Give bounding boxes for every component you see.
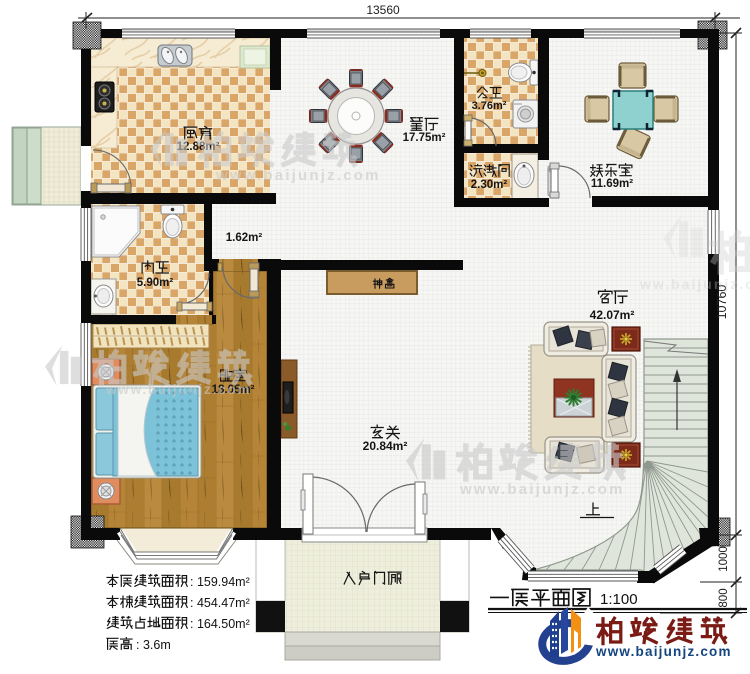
svg-text:www.baijunjz.com: www.baijunjz.com <box>595 644 732 659</box>
svg-text:1000: 1000 <box>718 546 730 572</box>
svg-text:www.baijunjz.com: www.baijunjz.com <box>459 481 625 498</box>
svg-text:: 454.47m²: : 454.47m² <box>190 596 250 610</box>
svg-text:: 159.94m²: : 159.94m² <box>190 575 250 589</box>
svg-text:20.84m²: 20.84m² <box>363 439 408 453</box>
svg-text:1.62m²: 1.62m² <box>226 232 263 244</box>
svg-text:800: 800 <box>718 588 730 607</box>
svg-text:17.75m²: 17.75m² <box>403 132 446 144</box>
svg-text:ww.baijunjz.com: ww.baijunjz.com <box>639 276 750 292</box>
svg-text:1:100: 1:100 <box>600 591 638 608</box>
svg-text:2.30m²: 2.30m² <box>471 179 508 191</box>
svg-text:: 3.6m: : 3.6m <box>136 638 171 652</box>
svg-text:www.baijunjz.com: www.baijunjz.com <box>215 167 381 184</box>
svg-text:: 164.50m²: : 164.50m² <box>190 617 250 631</box>
svg-text:www.baijunjz.com: www.baijunjz.com <box>105 382 251 397</box>
svg-text:42.07m²: 42.07m² <box>590 308 635 322</box>
svg-text:13560: 13560 <box>366 3 400 17</box>
svg-text:5.90m²: 5.90m² <box>137 277 174 289</box>
svg-text:11.69m²: 11.69m² <box>591 178 633 190</box>
svg-text:3.76m²: 3.76m² <box>472 100 507 112</box>
